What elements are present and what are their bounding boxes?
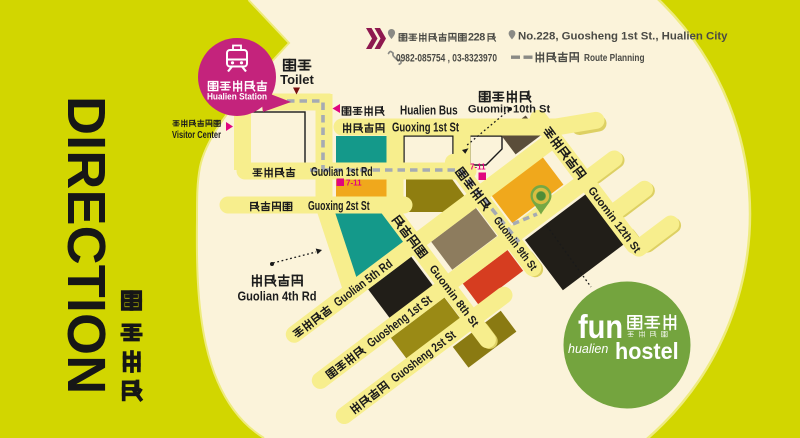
svg-text:228: 228 xyxy=(468,32,485,44)
svg-text:Hualien Station: Hualien Station xyxy=(207,91,267,102)
svg-text:hualien: hualien xyxy=(568,342,608,356)
svg-text:Hualien Bus: Hualien Bus xyxy=(400,105,458,118)
svg-text:Guolian 1st Rd: Guolian 1st Rd xyxy=(311,166,373,180)
svg-text:Guomin 10th St: Guomin 10th St xyxy=(468,103,551,115)
svg-text:Toilet: Toilet xyxy=(280,72,314,87)
svg-text:7-11: 7-11 xyxy=(346,179,362,188)
svg-text:Visitor Center: Visitor Center xyxy=(172,129,221,140)
svg-text:Guolian 4th Rd: Guolian 4th Rd xyxy=(237,289,316,304)
svg-text:hostel: hostel xyxy=(615,338,679,364)
svg-text:Guoxing 1st St: Guoxing 1st St xyxy=(392,121,459,135)
svg-text:DIRECTION: DIRECTION xyxy=(56,96,116,394)
svg-text:0982-085754 , 03-8323970: 0982-085754 , 03-8323970 xyxy=(396,53,497,65)
svg-text:No.228, Guosheng 1st St., Hual: No.228, Guosheng 1st St., Hualien City xyxy=(518,31,728,43)
svg-text:Route Planning: Route Planning xyxy=(584,52,645,63)
svg-text:Guoxing 2st St: Guoxing 2st St xyxy=(308,200,370,214)
svg-text:7-11: 7-11 xyxy=(470,163,486,172)
